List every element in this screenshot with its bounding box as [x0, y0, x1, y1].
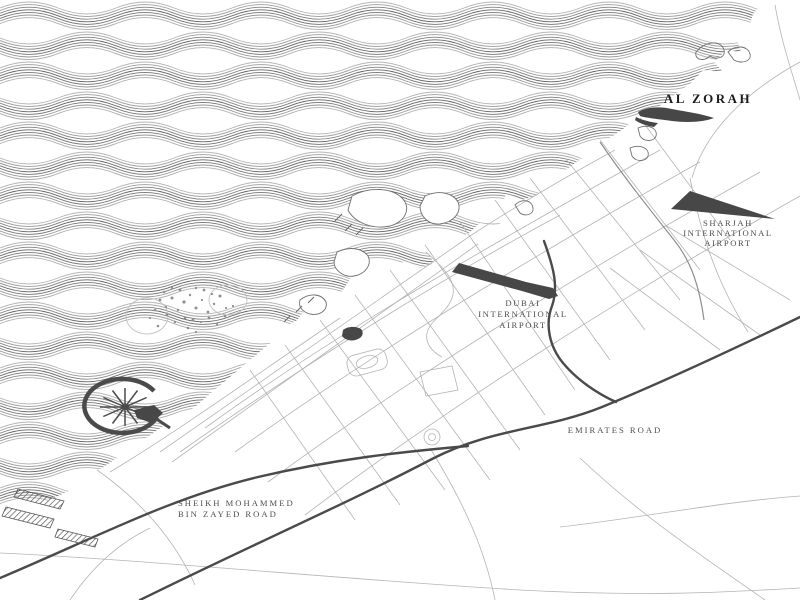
coastal-map: AL ZORAH SHARJAH INTERNATIONAL AIRPORT D…: [0, 0, 800, 600]
marina-docks: [2, 489, 98, 547]
svg-text:INTERNATIONAL: INTERNATIONAL: [683, 228, 773, 238]
sharjah-airport-label: SHARJAH INTERNATIONAL AIRPORT: [683, 218, 773, 248]
map-canvas: AL ZORAH SHARJAH INTERNATIONAL AIRPORT D…: [0, 0, 800, 600]
al-zorah-label: AL ZORAH: [664, 91, 752, 106]
airport-connector-road: [544, 241, 616, 402]
svg-text:BIN ZAYED ROAD: BIN ZAYED ROAD: [178, 509, 278, 519]
dubai-airport-area: [452, 263, 558, 299]
svg-text:INTERNATIONAL: INTERNATIONAL: [478, 309, 568, 319]
svg-text:AIRPORT: AIRPORT: [499, 320, 546, 330]
smbz-road-label: SHEIKH MOHAMMED BIN ZAYED ROAD: [178, 498, 295, 519]
dubai-airport-label: DUBAI INTERNATIONAL AIRPORT: [478, 298, 568, 330]
svg-text:DUBAI: DUBAI: [505, 298, 540, 308]
al-zorah-area: [635, 107, 714, 127]
svg-text:AIRPORT: AIRPORT: [704, 238, 751, 248]
downtown-lake: [342, 327, 363, 341]
emirates-road-label: EMIRATES ROAD: [568, 425, 663, 435]
sea-water: [0, 0, 766, 517]
sharjah-airport-area: [671, 191, 775, 219]
svg-text:SHARJAH: SHARJAH: [703, 218, 753, 228]
svg-text:SHEIKH MOHAMMED: SHEIKH MOHAMMED: [178, 498, 295, 508]
